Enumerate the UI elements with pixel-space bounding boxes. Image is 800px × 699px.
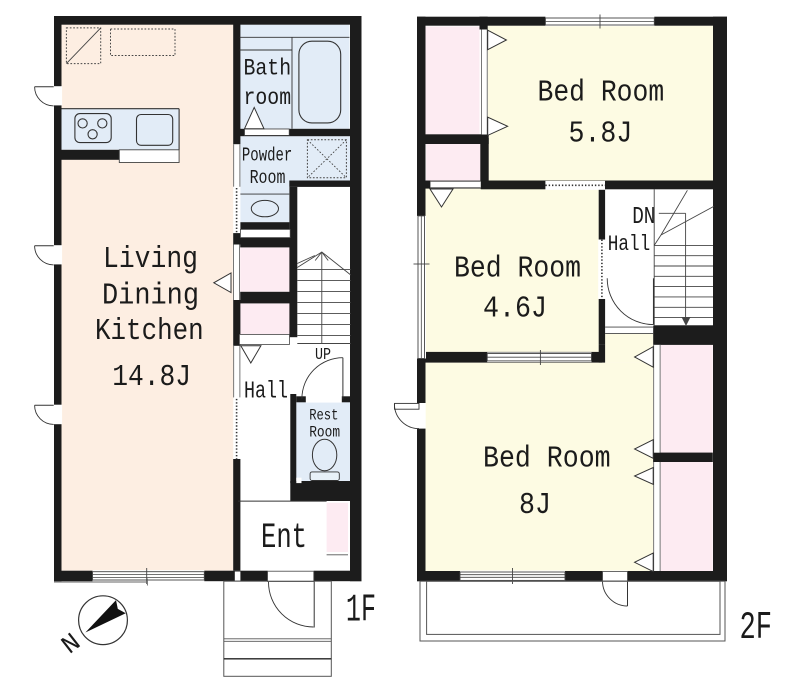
svg-text:5.8J: 5.8J: [569, 117, 633, 152]
svg-text:Dining: Dining: [102, 279, 199, 314]
svg-text:1F: 1F: [346, 588, 376, 632]
svg-text:Bath: Bath: [244, 55, 292, 81]
svg-text:Rest: Rest: [309, 407, 338, 425]
svg-text:Bed Room: Bed Room: [538, 75, 665, 110]
svg-text:Room: Room: [250, 167, 286, 189]
svg-text:room: room: [244, 85, 292, 111]
svg-text:Bed Room: Bed Room: [454, 252, 581, 287]
svg-text:Room: Room: [309, 424, 340, 442]
svg-text:Hall: Hall: [608, 232, 651, 257]
svg-text:UP: UP: [315, 346, 331, 365]
svg-text:4.6J: 4.6J: [483, 292, 547, 327]
svg-text:Kitchen: Kitchen: [95, 314, 204, 349]
svg-text:Powder: Powder: [242, 145, 292, 167]
svg-text:2F: 2F: [740, 606, 773, 650]
svg-text:DN: DN: [632, 204, 655, 231]
svg-text:Hall: Hall: [244, 379, 288, 406]
svg-text:Ent: Ent: [261, 518, 307, 558]
svg-text:8J: 8J: [519, 488, 551, 523]
svg-text:Bed Room: Bed Room: [483, 442, 611, 477]
svg-text:14.8J: 14.8J: [112, 360, 191, 395]
svg-text:Living: Living: [103, 242, 198, 277]
